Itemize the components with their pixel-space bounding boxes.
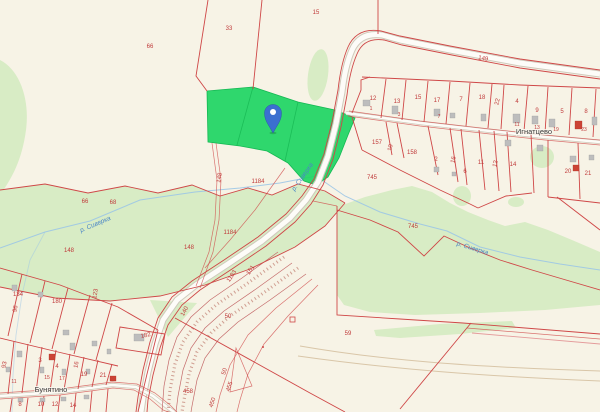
settlement-label: Игнатцево (516, 127, 552, 136)
parcel-number-label: 19 (553, 127, 559, 133)
parcel-number-label: 10 (38, 402, 45, 408)
parcel-number-label: 745 (408, 224, 419, 230)
parcel-number-label: 17 (434, 98, 441, 104)
parcel-number-label: 1184 (252, 179, 266, 185)
parcel-number-label: 458 (183, 389, 194, 395)
parcel-number-label: 66 (147, 44, 154, 50)
parcel-number-label: 21 (585, 171, 592, 177)
parcel-number-label: 11 (11, 379, 16, 385)
parcel-number-label: 12 (52, 402, 59, 408)
parcel-number-label: 13 (394, 99, 401, 105)
parcel-number-label: 134 (13, 292, 24, 298)
parcel-number-label: 21 (100, 373, 107, 379)
parcel-number-label: 15 (44, 375, 50, 381)
parcel-number-label: 158 (407, 150, 418, 156)
parcel-number-label: 15 (313, 10, 320, 16)
parcel-number-label: 12 (370, 96, 377, 102)
parcel-number-label: 14 (510, 162, 517, 168)
parcel-number-label: 20 (565, 169, 572, 175)
pin-center-dot (270, 109, 276, 115)
parcel-number-label: 157 (372, 140, 383, 146)
parcel-number-label: 15 (415, 95, 422, 101)
parcel-number-label: 14 (70, 403, 77, 409)
parcel-number-label: 148 (184, 245, 195, 251)
parcel-number-label: 33 (226, 26, 233, 32)
parcel-number-label: 180 (52, 299, 63, 305)
parcel-number-label: 148 (64, 248, 75, 254)
parcel-number-label: 66 (82, 199, 89, 205)
parcel-number-label: 1 (370, 106, 373, 112)
parcel-number-label: 3 (398, 112, 401, 118)
map-canvas[interactable]: 6633151491213151771822495813711131923157… (0, 0, 600, 412)
parcel-number-label: 59 (345, 331, 352, 337)
parcel-number-label: 7 (438, 114, 441, 120)
parcel-number-label: 23 (581, 127, 587, 133)
parcel-number-label: 1184 (224, 230, 238, 236)
parcel-number-label: 68 (110, 200, 117, 206)
parcel-number-label: 11 (478, 160, 485, 166)
parcel-number-label: 19 (81, 372, 88, 378)
parcel-number-label: 50 (225, 314, 232, 320)
parcel-number-label: 18 (479, 95, 486, 101)
settlement-label: Бунятино (35, 385, 68, 394)
parcel-number-label: 745 (367, 175, 378, 181)
parcel-number-label: 17 (59, 376, 65, 382)
